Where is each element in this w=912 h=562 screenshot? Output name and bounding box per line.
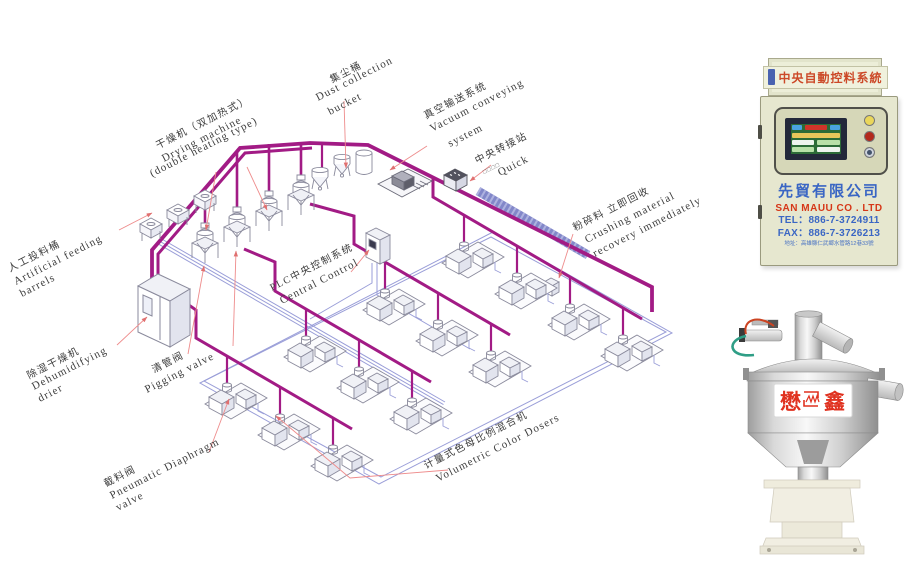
touch-screen [785, 118, 847, 160]
hmi-recess [774, 107, 888, 175]
dehumidifying-dryer [138, 274, 190, 347]
hinge [758, 125, 762, 139]
control-panel-photo: 中央自動控料系統 先貿有限公司 [760, 58, 900, 265]
panel-header-sign: 中央自動控料系統 [768, 58, 882, 96]
storage-tank [356, 150, 372, 175]
wiring-lines [157, 232, 672, 484]
dust-collection-group [312, 150, 432, 197]
plc-control-box [366, 228, 390, 264]
tel-line: TEL：886-7-3724911 [761, 215, 897, 228]
pneumatic-fittings [733, 320, 782, 356]
indicator-light-yellow [864, 115, 875, 126]
panel-logo [768, 69, 775, 85]
diagram-labels: 人工投料桶 Artificial feeding barrels 干燥机（双加热… [5, 54, 703, 513]
company-name-en: SAN MAUU CO . LTD [761, 203, 897, 216]
indicator-light-blue [864, 147, 875, 158]
top-inlet-pipe [795, 311, 855, 360]
drying-hoppers [192, 175, 314, 263]
fax-line: FAX：886-7-3726213 [761, 228, 897, 241]
isometric-diagram: 人工投料桶 Artificial feeding barrels 干燥机（双加热… [0, 0, 750, 562]
panel-cabinet: 先貿有限公司 SAN MAUU CO . LTD TEL：886-7-37249… [760, 96, 898, 266]
hopper-machine-photo: 懋 鑫 [712, 300, 908, 560]
label-vacuum-conveying-en2: system [446, 122, 485, 150]
central-transfer-station [444, 169, 467, 191]
panel-header-text: 中央自動控料系統 [779, 69, 883, 86]
hopper-lid [743, 359, 885, 381]
label-transfer-station-en1: Quick [496, 153, 531, 179]
machine-base [760, 480, 864, 554]
panel-info: 先貿有限公司 SAN MAUU CO . LTD TEL：886-7-37249… [761, 183, 897, 248]
company-name-zh: 先貿有限公司 [761, 183, 897, 202]
brand-char-left: 懋 [780, 390, 801, 414]
indicator-light-red [864, 131, 875, 142]
address-line: 地址：高雄縣仁武鄉水管路12巷33號 [761, 241, 897, 248]
brand-plate: 懋 鑫 [774, 384, 852, 417]
hmi-screen [791, 124, 841, 154]
brand-char-right: 鑫 [823, 390, 845, 414]
page: 人工投料桶 Artificial feeding barrels 干燥机（双加热… [0, 0, 912, 562]
